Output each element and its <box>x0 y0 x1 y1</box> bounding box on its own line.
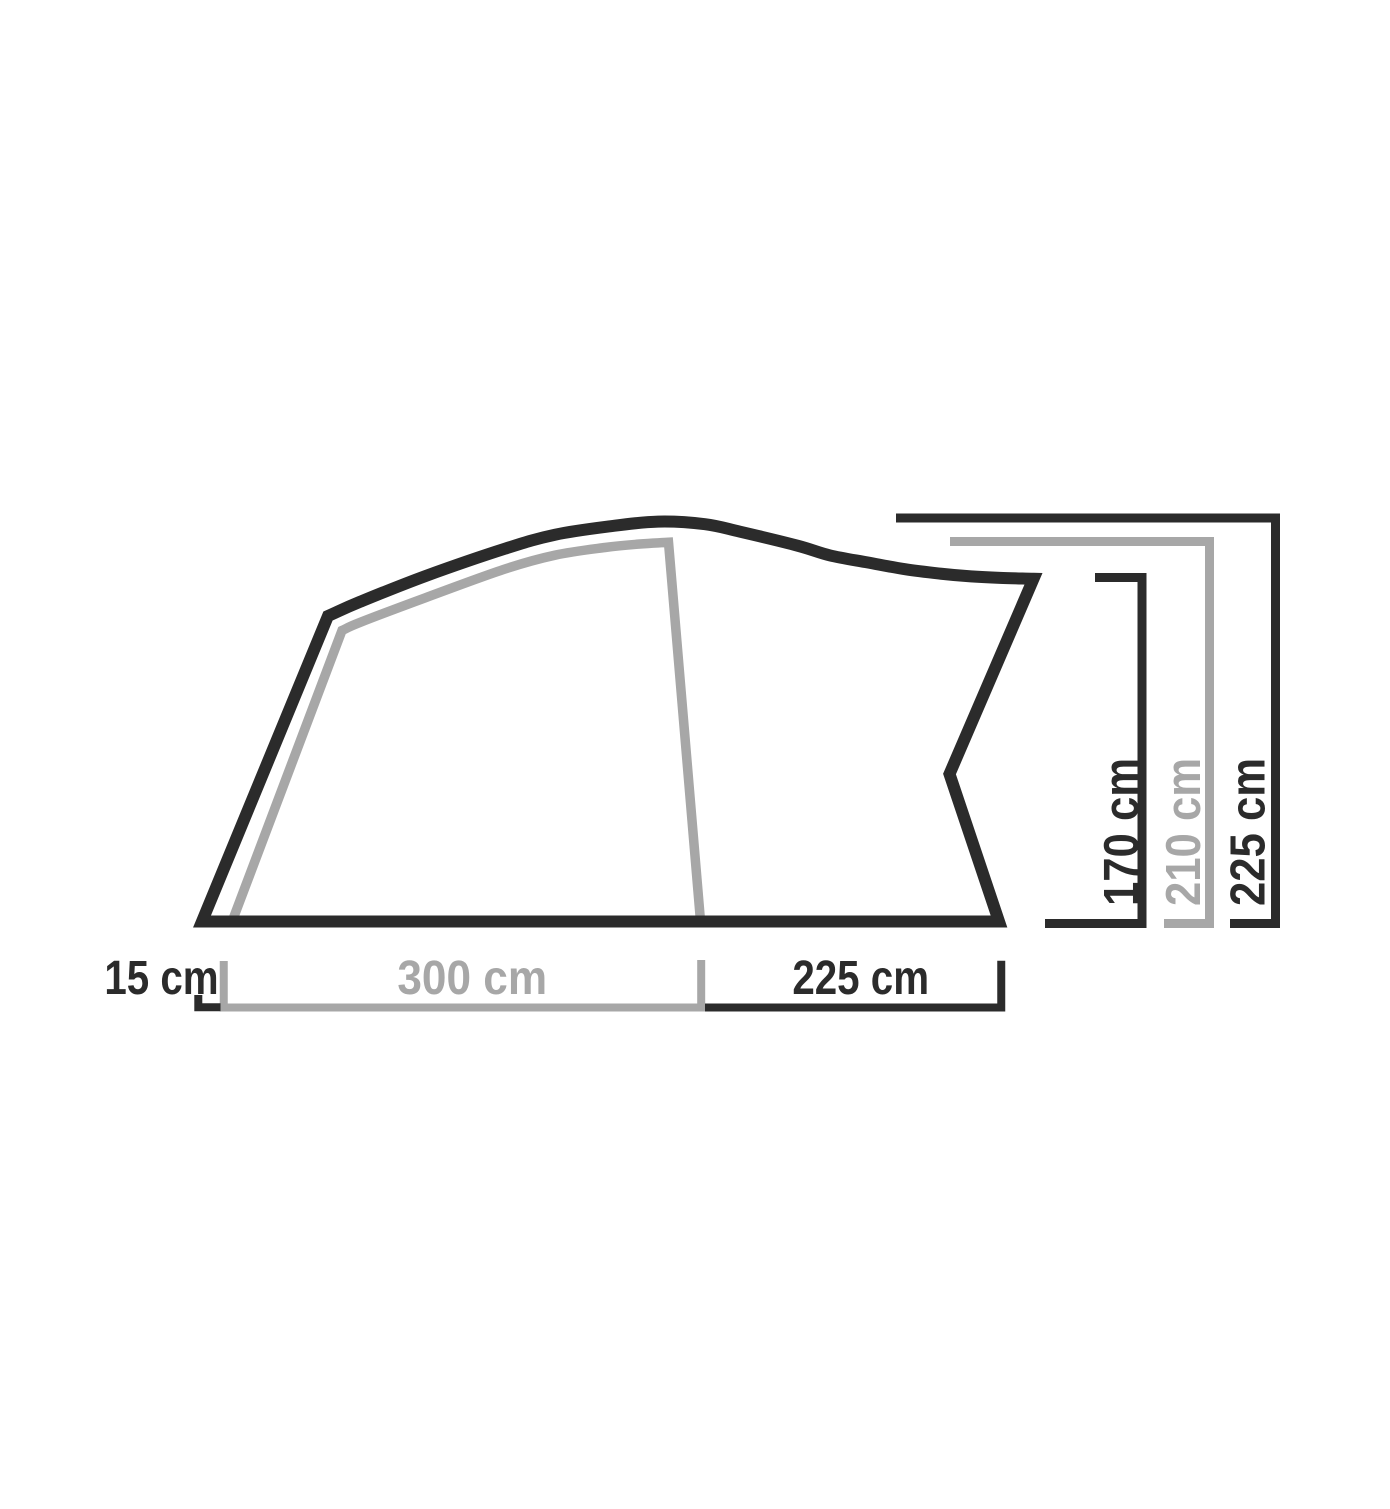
svg-text:170 cm: 170 cm <box>1093 758 1148 906</box>
svg-text:15 cm: 15 cm <box>104 952 218 1005</box>
svg-text:300 cm: 300 cm <box>397 950 547 1004</box>
svg-text:225 cm: 225 cm <box>1220 758 1275 906</box>
svg-text:210 cm: 210 cm <box>1155 758 1210 906</box>
svg-text:225 cm: 225 cm <box>792 952 929 1005</box>
